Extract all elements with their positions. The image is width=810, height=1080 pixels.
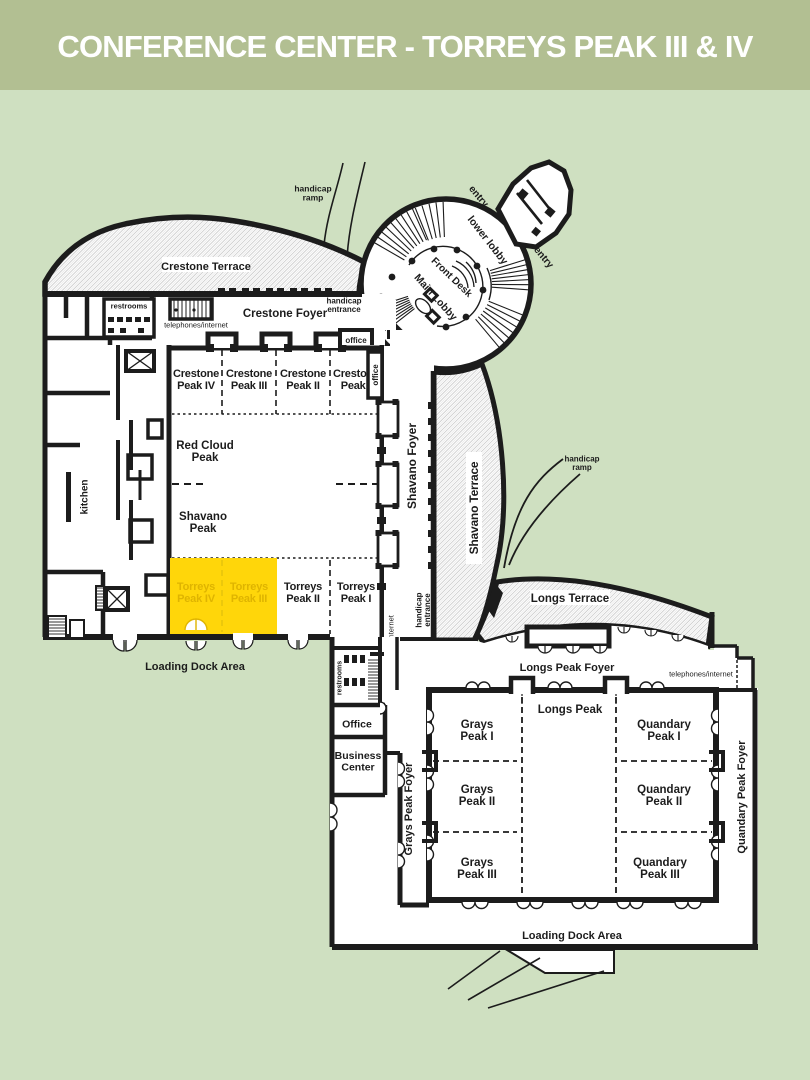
svg-text:QuandaryPeak III: QuandaryPeak III [633,857,687,881]
svg-text:TorreysPeak I: TorreysPeak I [337,581,375,605]
svg-text:CrestonePeak II: CrestonePeak II [280,368,326,392]
svg-text:Office: Office [342,719,372,731]
svg-text:TorreysPeak III: TorreysPeak III [230,581,268,605]
svg-text:kitchen: kitchen [80,479,91,514]
svg-text:Longs Peak: Longs Peak [538,704,603,716]
svg-text:CONFERENCE CENTER - TORREYS PE: CONFERENCE CENTER - TORREYS PEAK III & I… [57,29,753,64]
svg-text:Longs Peak Foyer: Longs Peak Foyer [520,662,615,674]
svg-text:Crestone Terrace: Crestone Terrace [161,261,251,273]
svg-text:Longs Terrace: Longs Terrace [531,593,609,605]
svg-text:BusinessCenter: BusinessCenter [335,750,382,773]
svg-text:Grays Peak Foyer: Grays Peak Foyer [403,762,415,856]
svg-text:Loading Dock Area: Loading Dock Area [145,661,246,673]
svg-text:restrooms: restrooms [111,302,148,311]
svg-text:Crestone Foyer: Crestone Foyer [243,308,328,320]
svg-text:TorreysPeak IV: TorreysPeak IV [177,581,216,605]
svg-text:GraysPeak I: GraysPeak I [460,719,493,743]
svg-text:telephones/internet: telephones/internet [669,670,734,679]
svg-text:Quandary Peak Foyer: Quandary Peak Foyer [736,740,748,854]
svg-text:CrestonePeak IV: CrestonePeak IV [173,368,219,392]
svg-text:handicapentrance: handicapentrance [326,297,361,315]
svg-text:TorreysPeak II: TorreysPeak II [284,581,322,605]
svg-text:GraysPeak II: GraysPeak II [459,784,495,808]
svg-text:telephones/internet: telephones/internet [164,321,229,330]
svg-text:Loading Dock Area: Loading Dock Area [522,930,623,942]
svg-text:Shavano Terrace: Shavano Terrace [467,461,481,554]
svg-text:handicapentrance: handicapentrance [415,592,433,627]
svg-text:office: office [371,364,380,386]
svg-text:Shavano Foyer: Shavano Foyer [405,423,419,509]
svg-text:restrooms: restrooms [336,661,343,695]
svg-text:GraysPeak III: GraysPeak III [457,857,497,881]
svg-text:office: office [345,336,367,345]
svg-text:CrestonePeak III: CrestonePeak III [226,368,272,392]
